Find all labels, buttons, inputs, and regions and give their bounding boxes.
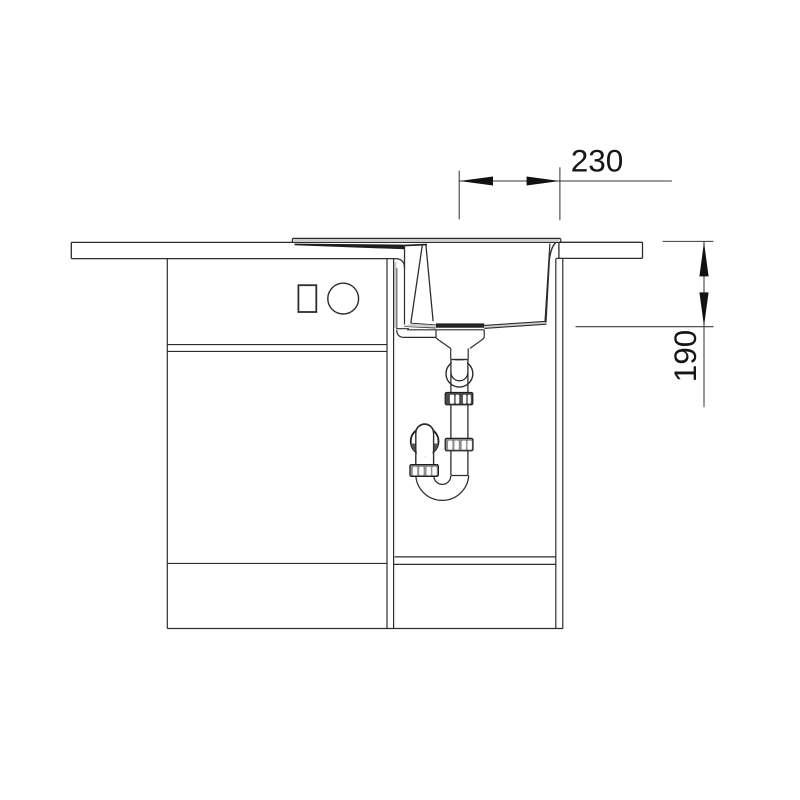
svg-text:190: 190 [667, 330, 703, 383]
svg-text:230: 230 [571, 143, 624, 179]
